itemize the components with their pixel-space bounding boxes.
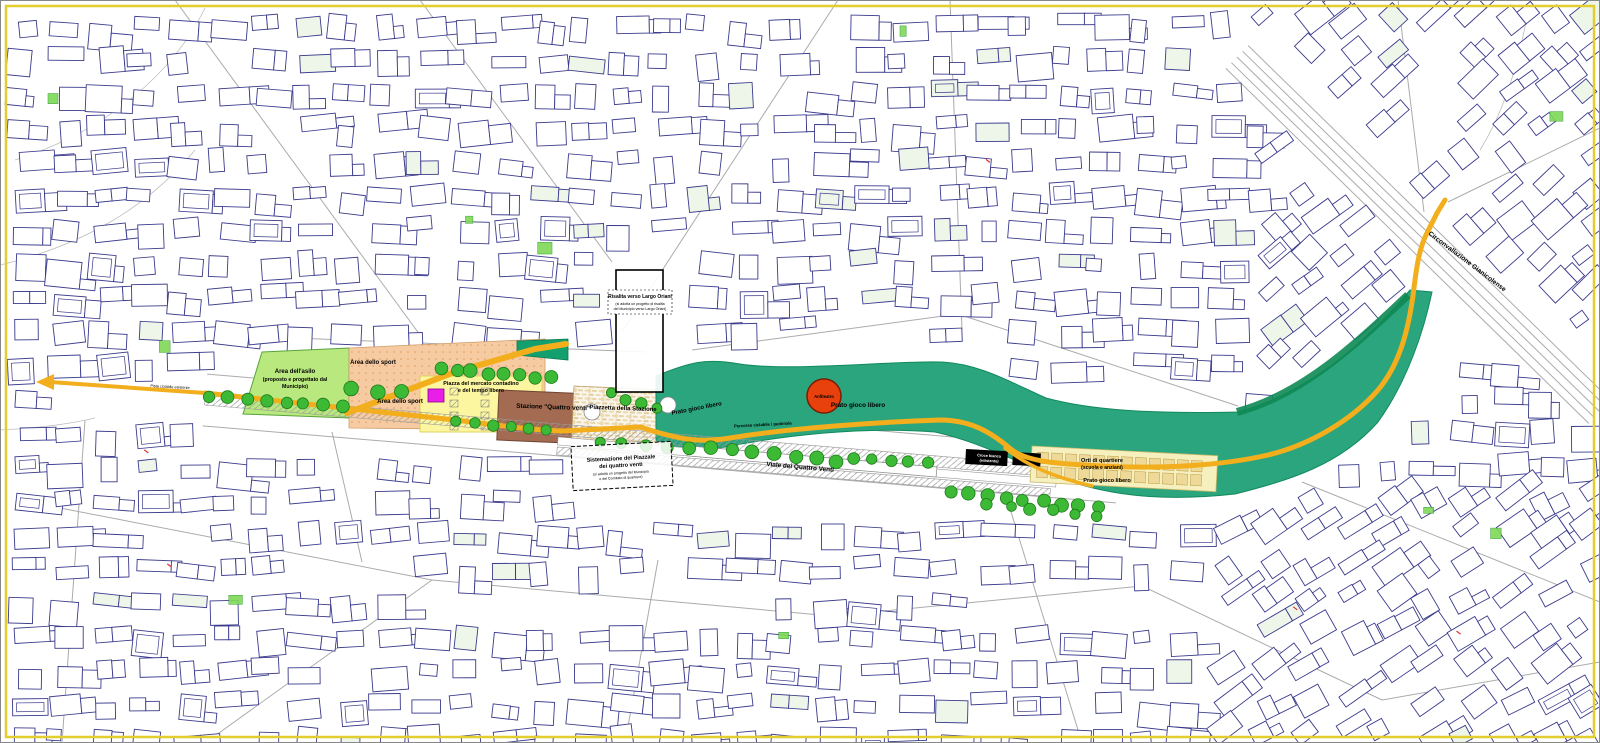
building xyxy=(457,261,473,281)
building xyxy=(1133,630,1150,643)
building xyxy=(732,184,761,203)
building xyxy=(1165,48,1191,71)
building xyxy=(1493,573,1533,608)
tree xyxy=(497,367,510,380)
building xyxy=(173,217,200,238)
building xyxy=(1261,304,1309,347)
building xyxy=(766,666,817,687)
tree xyxy=(922,457,933,468)
building xyxy=(769,19,801,40)
building xyxy=(167,156,199,180)
building xyxy=(96,703,116,719)
building xyxy=(1569,496,1600,540)
tree xyxy=(470,418,481,429)
building xyxy=(936,114,968,128)
building xyxy=(140,657,177,677)
building xyxy=(574,252,593,265)
building xyxy=(578,567,598,594)
building xyxy=(331,48,371,67)
building xyxy=(654,19,681,33)
building xyxy=(1181,262,1224,280)
building xyxy=(1053,525,1078,541)
building xyxy=(88,321,128,350)
building xyxy=(419,664,437,677)
building xyxy=(608,52,639,76)
building xyxy=(54,154,97,173)
building xyxy=(170,424,193,448)
building xyxy=(818,665,841,690)
tree xyxy=(297,398,308,409)
tree xyxy=(726,444,738,456)
building xyxy=(1449,580,1489,614)
building xyxy=(85,85,133,114)
building xyxy=(289,486,335,504)
building xyxy=(809,566,840,579)
building xyxy=(539,55,569,73)
tree xyxy=(541,425,551,435)
building xyxy=(1090,217,1113,244)
building xyxy=(529,460,563,474)
building xyxy=(1341,616,1383,655)
building xyxy=(1330,244,1354,267)
building xyxy=(256,88,292,108)
building xyxy=(654,631,688,652)
building xyxy=(1170,631,1220,656)
building xyxy=(1208,288,1245,310)
building xyxy=(934,218,967,241)
orti-plot xyxy=(1190,474,1202,486)
building xyxy=(1567,618,1588,639)
building xyxy=(179,258,204,277)
building xyxy=(55,427,81,442)
building xyxy=(974,661,998,679)
building xyxy=(805,92,855,117)
building xyxy=(296,16,322,37)
tree xyxy=(867,454,877,464)
label-risalita-3: del Municipio verso Largo Oriani) xyxy=(614,307,667,311)
building xyxy=(934,660,970,674)
building xyxy=(854,526,904,549)
building xyxy=(893,22,929,42)
building xyxy=(652,86,668,112)
building xyxy=(529,562,548,587)
building xyxy=(1290,183,1314,207)
building xyxy=(1171,357,1212,381)
red-mark xyxy=(144,450,148,453)
building xyxy=(1301,291,1349,337)
building xyxy=(736,663,752,678)
building xyxy=(1572,245,1594,266)
building xyxy=(370,526,410,544)
building xyxy=(174,734,221,743)
building xyxy=(1010,85,1047,98)
building xyxy=(459,566,493,594)
building xyxy=(699,83,731,108)
building xyxy=(537,525,581,549)
building xyxy=(1091,631,1128,658)
building xyxy=(572,122,607,140)
building xyxy=(1248,188,1287,213)
building xyxy=(251,554,284,575)
building xyxy=(1214,219,1255,246)
building xyxy=(139,321,163,340)
tree xyxy=(683,442,696,455)
building xyxy=(1095,692,1121,713)
building xyxy=(818,627,839,642)
building xyxy=(1016,53,1054,82)
building xyxy=(1221,261,1250,283)
building xyxy=(1457,104,1486,131)
building xyxy=(300,54,336,73)
masterplan-map: Area dell'asilo (proposto e progettato d… xyxy=(0,0,1600,743)
building xyxy=(297,459,315,475)
building xyxy=(1527,242,1556,271)
building xyxy=(696,53,719,82)
building xyxy=(1534,718,1576,743)
building xyxy=(179,694,219,723)
tree xyxy=(620,395,631,406)
tree xyxy=(981,499,993,511)
building xyxy=(371,666,408,692)
building xyxy=(421,50,464,66)
building xyxy=(1013,696,1061,716)
building xyxy=(1501,687,1534,715)
building xyxy=(493,490,520,502)
building xyxy=(135,360,152,381)
building xyxy=(1495,422,1530,448)
building xyxy=(1097,292,1121,316)
building xyxy=(976,123,1009,142)
building xyxy=(1130,227,1171,243)
tree xyxy=(242,393,254,405)
building xyxy=(1251,498,1303,545)
building xyxy=(126,188,150,202)
building xyxy=(248,527,283,553)
building xyxy=(1293,548,1335,586)
building xyxy=(1530,419,1555,445)
building xyxy=(493,728,537,743)
label-mercato-2: e del tempo libero xyxy=(458,388,505,394)
building xyxy=(1293,684,1329,718)
building xyxy=(378,595,426,620)
building xyxy=(409,498,440,519)
building xyxy=(460,222,489,244)
building xyxy=(207,285,252,305)
building xyxy=(1257,687,1296,720)
building xyxy=(1500,69,1539,102)
building xyxy=(1460,34,1494,68)
tree xyxy=(545,371,558,384)
building xyxy=(459,456,482,481)
label-mercato: Piazza del mercato contadino xyxy=(443,381,519,387)
garden-patch xyxy=(229,595,243,604)
building xyxy=(55,489,82,507)
building xyxy=(1087,48,1123,72)
building xyxy=(1293,340,1321,367)
building xyxy=(288,668,320,685)
orti-plot xyxy=(1176,474,1188,486)
building xyxy=(8,597,33,623)
building xyxy=(699,119,742,147)
building xyxy=(727,693,753,708)
building xyxy=(1328,67,1361,99)
building xyxy=(1086,258,1102,271)
building xyxy=(617,150,639,165)
building xyxy=(211,20,248,41)
building xyxy=(95,626,133,643)
building xyxy=(1411,421,1429,444)
building xyxy=(1172,16,1204,28)
building xyxy=(534,701,555,725)
building xyxy=(331,324,362,345)
building xyxy=(1011,258,1041,283)
building xyxy=(894,557,930,578)
building xyxy=(338,289,376,305)
tree xyxy=(488,420,499,431)
building xyxy=(779,560,812,584)
building xyxy=(892,188,910,201)
building xyxy=(1130,19,1147,43)
building xyxy=(454,533,486,545)
building xyxy=(810,256,831,272)
label-asilo: Area dell'asilo xyxy=(275,369,316,375)
building xyxy=(215,626,240,640)
building xyxy=(412,466,431,484)
building xyxy=(1054,287,1102,316)
building xyxy=(772,220,805,244)
building xyxy=(1060,86,1090,108)
building xyxy=(293,185,326,199)
garden-patch xyxy=(900,26,906,36)
building xyxy=(851,82,877,103)
building xyxy=(977,47,1011,63)
building xyxy=(214,189,250,208)
label-anfiteatro: Anfiteatro xyxy=(814,394,834,399)
building xyxy=(176,563,215,581)
tree xyxy=(1091,511,1102,522)
building xyxy=(533,493,575,522)
building xyxy=(699,151,722,175)
building xyxy=(20,427,56,441)
building xyxy=(337,630,364,648)
building xyxy=(1012,661,1037,688)
building xyxy=(492,56,526,67)
building xyxy=(576,319,613,347)
building xyxy=(1533,165,1564,196)
building xyxy=(127,53,151,67)
tree xyxy=(261,395,273,407)
building xyxy=(1493,102,1527,136)
building xyxy=(1489,716,1536,743)
building xyxy=(613,87,642,105)
building xyxy=(297,726,318,743)
building xyxy=(1377,606,1420,639)
building xyxy=(981,523,1035,538)
building xyxy=(461,734,482,743)
kiosk-marker xyxy=(428,389,444,402)
building xyxy=(929,155,967,169)
building xyxy=(97,352,131,381)
building xyxy=(327,13,358,41)
label-prato-3: Prato gioco libero xyxy=(1083,478,1131,484)
building xyxy=(932,255,983,272)
tree xyxy=(506,422,516,432)
building xyxy=(58,667,102,689)
building xyxy=(134,257,156,276)
building xyxy=(408,295,426,309)
building xyxy=(1049,180,1093,204)
building xyxy=(498,159,533,178)
building xyxy=(689,285,727,309)
building xyxy=(860,118,877,142)
building xyxy=(367,187,402,203)
garden-patch xyxy=(1424,507,1434,513)
tree xyxy=(451,416,461,426)
building xyxy=(700,629,718,656)
building xyxy=(257,629,286,658)
building xyxy=(814,125,856,143)
building xyxy=(1541,457,1564,477)
building xyxy=(5,88,35,108)
building xyxy=(501,14,542,30)
building xyxy=(1447,611,1495,651)
building xyxy=(487,457,531,472)
building xyxy=(654,156,675,185)
tree xyxy=(606,388,616,398)
building xyxy=(1101,668,1130,684)
building xyxy=(1210,11,1230,39)
orti-plot xyxy=(1162,473,1174,485)
building xyxy=(1051,361,1104,383)
tree xyxy=(848,453,860,465)
building xyxy=(894,261,914,285)
building xyxy=(15,319,39,340)
building xyxy=(1213,159,1261,179)
building xyxy=(252,48,287,71)
building xyxy=(1459,463,1502,487)
building xyxy=(1581,545,1600,582)
tree xyxy=(767,447,781,461)
building xyxy=(1127,49,1144,74)
building xyxy=(1570,310,1589,328)
building xyxy=(1008,220,1042,240)
building xyxy=(13,699,49,716)
building xyxy=(1129,531,1156,548)
tree xyxy=(1048,504,1059,515)
building xyxy=(138,224,164,249)
tree xyxy=(203,391,214,402)
building xyxy=(330,594,367,623)
building xyxy=(930,328,963,343)
building xyxy=(897,532,921,552)
building xyxy=(740,54,757,71)
building xyxy=(181,465,210,478)
building xyxy=(770,734,806,743)
tree xyxy=(463,364,477,378)
tree xyxy=(317,398,330,411)
building xyxy=(7,358,34,385)
building xyxy=(737,633,770,659)
building xyxy=(214,690,258,708)
building xyxy=(1012,193,1049,214)
building xyxy=(862,288,899,304)
tree xyxy=(523,423,534,434)
label-risalita: Risalita verso Largo Oriani xyxy=(608,294,672,300)
building xyxy=(138,459,157,473)
building xyxy=(172,321,219,343)
building xyxy=(815,189,856,210)
building xyxy=(15,390,52,409)
building xyxy=(500,84,528,103)
orti-plot xyxy=(1148,472,1160,484)
building xyxy=(57,191,98,206)
building xyxy=(851,15,892,40)
tree xyxy=(395,385,409,399)
building xyxy=(897,596,913,620)
building xyxy=(492,704,519,720)
tree xyxy=(344,381,359,396)
building xyxy=(133,90,154,107)
garden-patch xyxy=(466,216,473,223)
building xyxy=(1091,88,1115,114)
building xyxy=(1007,319,1036,345)
building xyxy=(50,692,97,716)
building xyxy=(415,257,430,275)
building xyxy=(608,664,656,693)
building xyxy=(1171,156,1187,169)
building xyxy=(48,354,102,378)
building xyxy=(370,84,390,106)
building xyxy=(1338,580,1366,603)
building xyxy=(934,57,965,75)
building xyxy=(1411,645,1443,673)
building xyxy=(1498,451,1544,476)
building xyxy=(648,54,667,69)
building xyxy=(495,219,519,243)
building xyxy=(620,557,644,574)
building xyxy=(18,20,37,37)
building xyxy=(1448,138,1479,170)
building xyxy=(1009,564,1035,584)
building xyxy=(488,296,523,322)
building xyxy=(131,630,163,659)
building xyxy=(1215,556,1242,585)
building xyxy=(1336,709,1371,737)
building xyxy=(1366,97,1409,138)
building xyxy=(177,85,205,103)
building xyxy=(741,124,759,136)
building xyxy=(53,321,86,346)
building xyxy=(1216,83,1242,103)
tree xyxy=(435,362,448,375)
building xyxy=(14,528,50,550)
garden-patch xyxy=(1550,112,1563,122)
building xyxy=(1458,59,1499,99)
building xyxy=(777,256,813,284)
building xyxy=(967,186,998,208)
building xyxy=(406,151,438,174)
building xyxy=(850,149,879,162)
label-orti: Orti di quartiere xyxy=(1081,458,1123,464)
garden-patch xyxy=(159,341,170,353)
building xyxy=(220,124,253,147)
building xyxy=(369,694,401,711)
building xyxy=(780,53,820,76)
building xyxy=(1092,317,1133,342)
building xyxy=(46,729,61,741)
building xyxy=(773,284,801,301)
tree xyxy=(513,369,525,381)
